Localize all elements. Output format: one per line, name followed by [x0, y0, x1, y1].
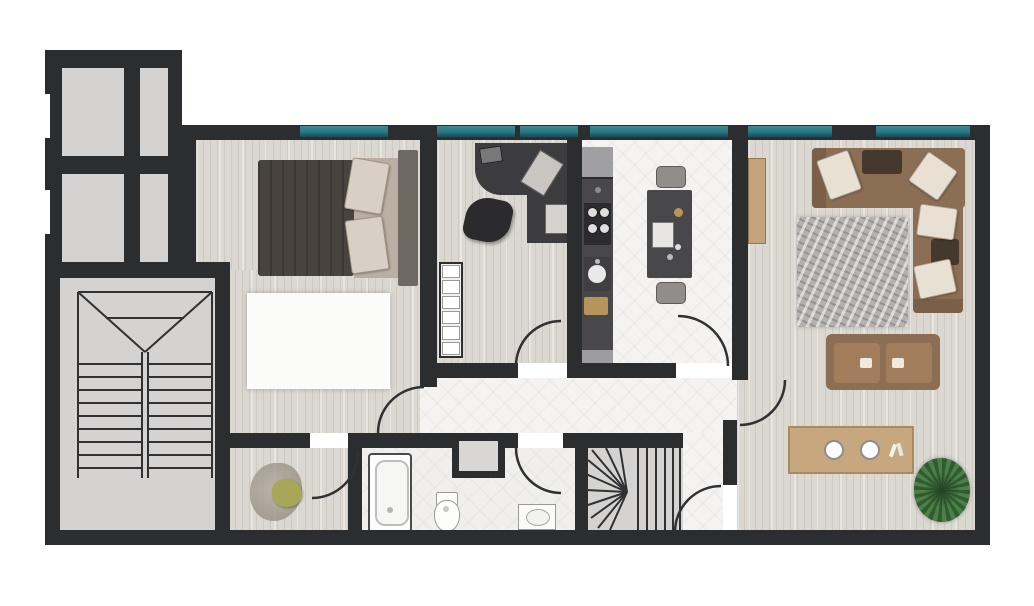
- floor-plan-canvas: [0, 0, 1034, 606]
- main-stairwell-stairs: [78, 292, 212, 478]
- winder-staircase-stairs: [586, 448, 680, 530]
- winder-ray: [588, 460, 627, 492]
- door-arc-kitchen: [678, 316, 728, 366]
- door-arc-living: [740, 380, 785, 425]
- door-arc-bedroom: [378, 387, 424, 433]
- door-arc-bathroom: [516, 448, 561, 493]
- stair-landing-diagonal: [145, 292, 212, 352]
- door-arc-closet: [312, 452, 358, 498]
- door-arc-office: [516, 321, 561, 366]
- stair-landing-diagonal: [78, 292, 145, 352]
- door-arc-vestibule: [675, 486, 721, 532]
- lines-overlay: [0, 0, 1034, 606]
